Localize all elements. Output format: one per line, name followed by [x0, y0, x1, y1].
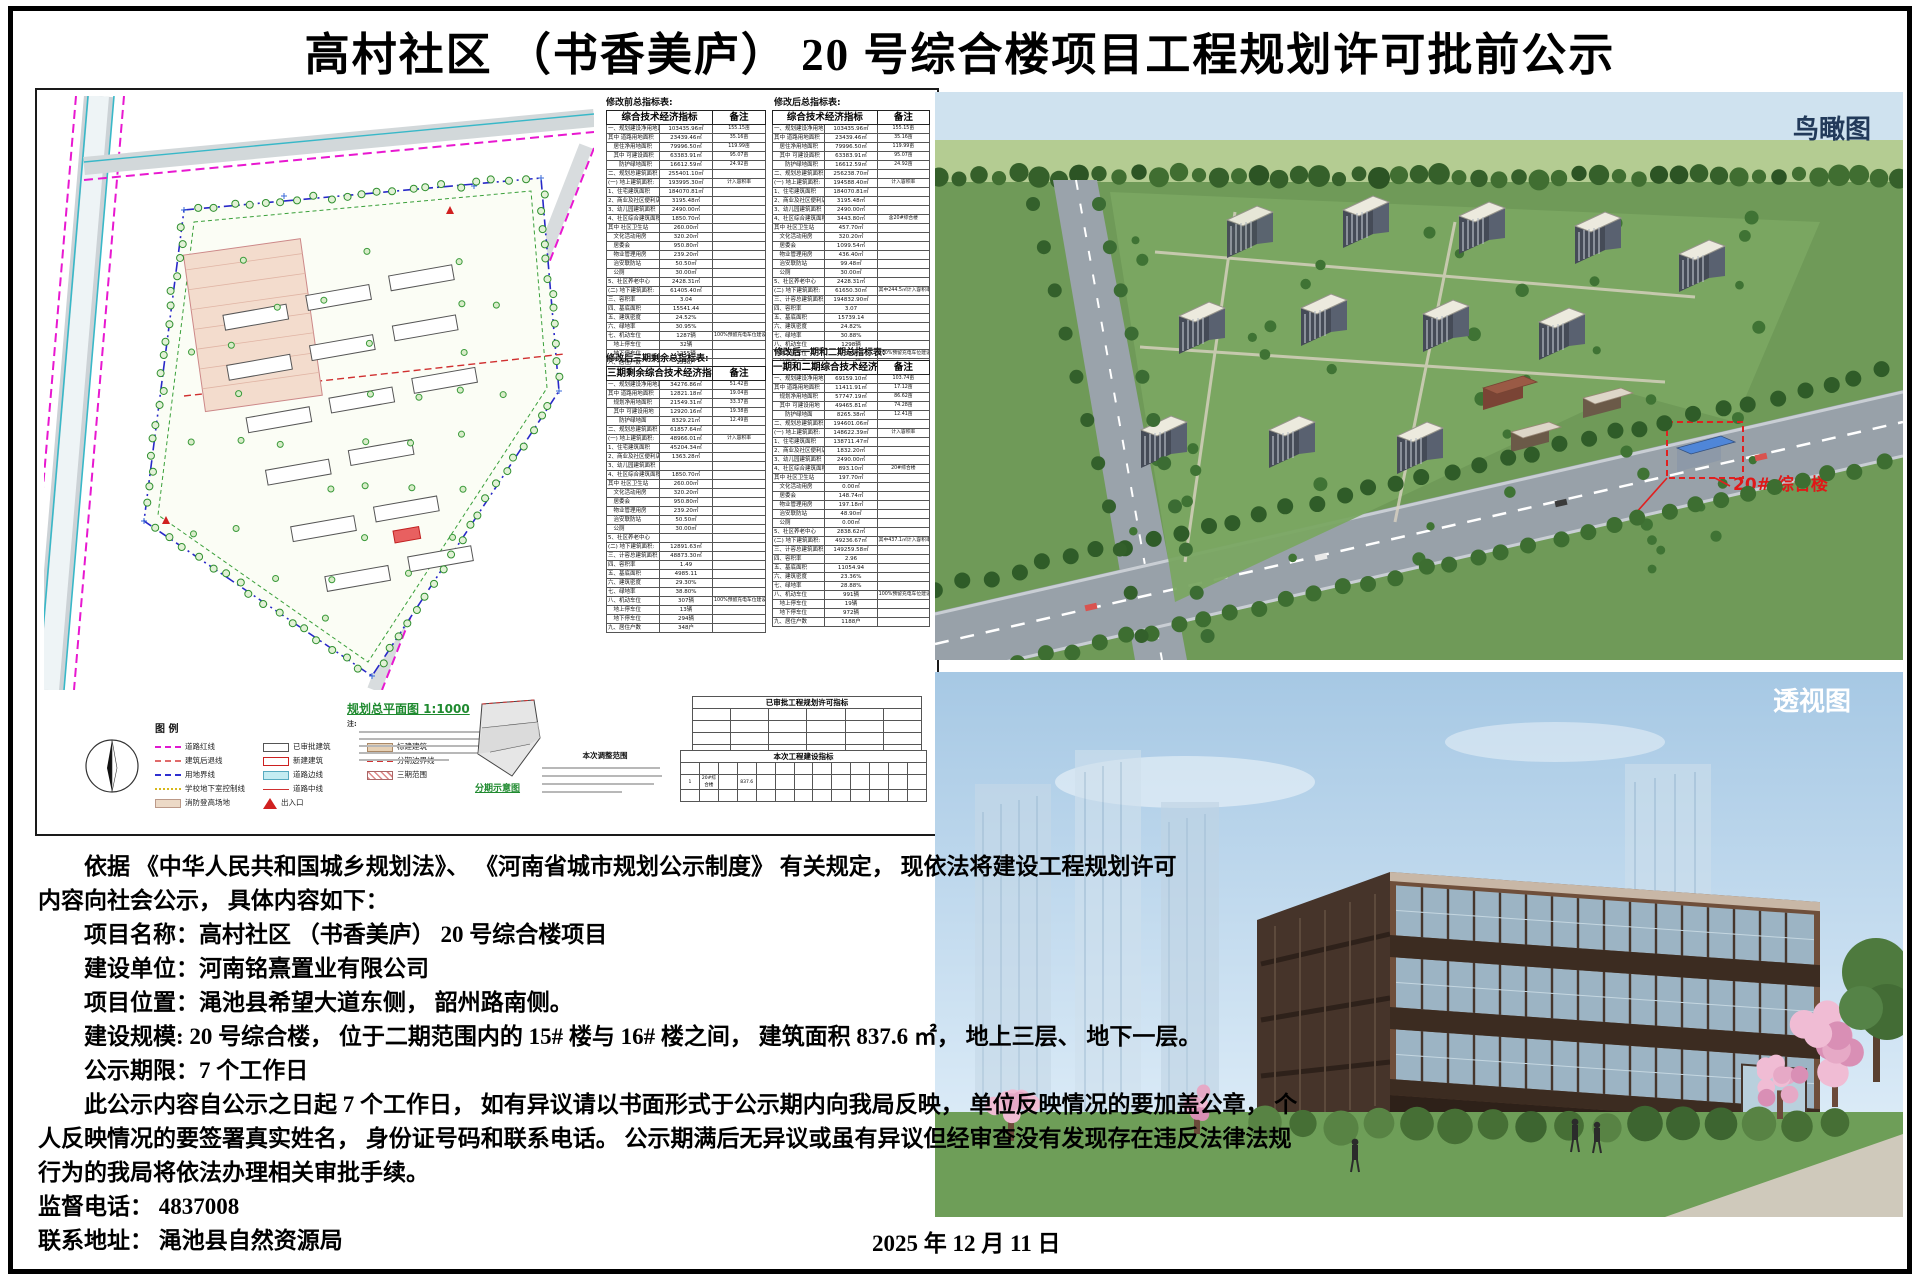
table-cell: 二、规划总建筑面积 — [607, 170, 660, 179]
table-cell: 13辆 — [660, 606, 713, 615]
table-cell: 11411.91㎡ — [825, 384, 877, 393]
table-cell — [845, 721, 883, 733]
legend-item: 建筑后退线 — [155, 754, 263, 768]
table-row: 三、计容总建筑面积194832.90㎡ — [773, 296, 930, 305]
table-cell: 公厕 — [607, 525, 660, 534]
table-cell: 8329.21㎡ — [660, 417, 713, 426]
page-title: 高村社区 （书香美庐） 20 号综合楼项目工程规划许可批前公示 — [0, 18, 1920, 83]
table-cell: (一) 地上建筑面积: — [607, 435, 660, 444]
adjust-scope-block: 本次调整范围 — [542, 750, 668, 799]
table-cell: 1832.20㎡ — [825, 447, 877, 456]
table-cell — [877, 420, 929, 429]
table-cell: 197.70㎡ — [825, 474, 877, 483]
table-cell: 规划净用地面积 — [773, 393, 825, 402]
table-row: 防护绿地面积16612.59㎡24.92亩 — [773, 161, 930, 170]
table-cell: 12.41亩 — [877, 411, 929, 420]
table-cell: 28.88% — [825, 582, 877, 591]
table-row: 4、社区综合建筑面积893.10㎡20#综合楼 — [773, 465, 930, 474]
table-cell — [756, 790, 775, 802]
table-cell: 1、住宅建筑面积 — [607, 444, 660, 453]
table-cell — [713, 561, 766, 570]
line-red-swatch — [263, 789, 289, 790]
table-header: 备注 — [877, 361, 929, 375]
table-row: 公厕30.00㎡ — [607, 525, 766, 534]
table-cell: 100%预留充电车位建设安装条件 — [713, 332, 766, 341]
table-row: 规划净用地面积21549.31㎡33.37亩 — [607, 399, 766, 408]
table-cell — [877, 492, 929, 501]
table-cell — [713, 498, 766, 507]
legend-title: 图 例 — [155, 724, 178, 735]
table-cell: 2、商业及社区便利店面积 — [607, 453, 660, 462]
table-cell: 149259.58㎡ — [825, 546, 877, 555]
notice-text-block: 依据 《中华人民共和国城乡规划法》、 《河南省城市规划公示制度》 有关规定， 现… — [38, 850, 938, 1258]
table-cell: 文化活动用房 — [773, 483, 825, 492]
table-header: 一期和二期综合技术经济指标 — [773, 361, 878, 375]
table-cell: 三、计容总建筑面积 — [607, 552, 660, 561]
notice-line: 建设规模: 20 号综合楼， 位于二期范围内的 15# 楼与 16# 楼之间， … — [38, 1020, 938, 1054]
table-row: 2、商业及社区便利店面积3195.48㎡ — [773, 197, 930, 206]
table-cell — [877, 170, 929, 179]
table-cell: 居委会 — [773, 492, 825, 501]
notice-line: 行为的我局将依法办理相关审批手续。 — [38, 1156, 938, 1190]
table-cell: 1363.28㎡ — [660, 453, 713, 462]
table-cell: 20#综合楼 — [699, 775, 718, 790]
table-cell: 其中 社区卫生站 — [773, 474, 825, 483]
table-row: 七、绿地率28.88% — [773, 582, 930, 591]
table-cell: 计入容积率 — [877, 179, 929, 188]
table-row: 其中 道路用地面积11411.91㎡17.12亩 — [773, 384, 930, 393]
table-cell: 治安联防站 — [773, 260, 825, 269]
table-cell: 103435.96㎡ — [660, 125, 713, 134]
table-row: 三、容积率3.04 — [607, 296, 766, 305]
current-project-table: 本次工程建设指标120#综合楼837.6 — [680, 750, 927, 802]
table-cell: 居委会 — [773, 242, 825, 251]
table-cell — [756, 775, 775, 790]
table-row: 4、社区综合建筑面积1850.70㎡ — [607, 215, 766, 224]
table-cell: 地上停车位 — [773, 600, 825, 609]
table-cell: 119.99亩 — [713, 143, 766, 152]
table-cell — [851, 790, 870, 802]
notice-line: 人反映情况的要签署真实姓名， 身份证号码和联系电话。 公示期满后无异议或虽有异议… — [38, 1122, 938, 1156]
table-cell: 0.00㎡ — [825, 519, 877, 528]
table-cell — [877, 332, 929, 341]
table-cell: 12891.63㎡ — [660, 543, 713, 552]
dash-magenta-swatch — [155, 746, 181, 748]
table-row: 文化活动用房320.20㎡ — [773, 233, 930, 242]
table-cell: 255401.10㎡ — [660, 170, 713, 179]
table-row: 其中 社区卫生站260.00㎡ — [607, 224, 766, 233]
table-cell: (一) 地上建筑面积: — [773, 179, 825, 188]
table-cell: 其中 道路用地面积 — [607, 134, 660, 143]
table-caption-phase3: 修改后三期剩余总指标表: — [606, 354, 709, 365]
table-cell: 六、绿地率 — [607, 323, 660, 332]
table-cell: 其中 可建设用地 — [773, 402, 825, 411]
table-row: 地上停车位32辆 — [607, 341, 766, 350]
table-header: 备注 — [713, 367, 766, 381]
table-cell — [713, 534, 766, 543]
table-cell: (二) 地下建筑面积: — [773, 537, 825, 546]
table-cell — [807, 709, 845, 721]
table-phase12: 一期和二期综合技术经济指标备注一、规划建设净用地面积:69159.10㎡103.… — [772, 360, 930, 627]
table-row: 地下停车位294辆 — [607, 615, 766, 624]
table-row: 五、基底面积15739.14 — [773, 314, 930, 323]
table-cell: 防护绿地面积 — [773, 161, 825, 170]
table-cell — [832, 790, 851, 802]
table-cell: 居委会 — [607, 242, 660, 251]
table-cell: 30.95% — [660, 323, 713, 332]
table-header: 综合技术经济指标 — [607, 111, 713, 125]
table-cell: 320.20㎡ — [825, 233, 877, 242]
dash-yellow-swatch — [155, 788, 181, 790]
table-cell: 地下停车位 — [607, 615, 660, 624]
table-row: 3、幼儿园建筑面积2490.00㎡ — [607, 206, 766, 215]
table-cell: 1.49 — [660, 561, 713, 570]
table-cell — [660, 462, 713, 471]
notice-line: 内容向社会公示， 具体内容如下： — [38, 884, 938, 918]
table-cell: 35.16亩 — [877, 134, 929, 143]
table-cell — [877, 296, 929, 305]
table-row: 五、建筑密度24.52% — [607, 314, 766, 323]
aerial-view-image: 20# 综合楼 鸟瞰图 — [935, 92, 1903, 660]
table-cell — [794, 775, 813, 790]
table-cell: 2428.31㎡ — [660, 278, 713, 287]
table-row: 1、住宅建筑面积45204.34㎡ — [607, 444, 766, 453]
table-cell: 103435.96㎡ — [825, 125, 877, 134]
table-row: 防护绿地面8329.21㎡12.49亩 — [607, 417, 766, 426]
table-row: 防护绿地面积16612.59㎡24.92亩 — [607, 161, 766, 170]
table-cell: 计入容积率 — [877, 429, 929, 438]
table-cell: (二) 地下建筑面积: — [607, 543, 660, 552]
table-cell: 991辆 — [825, 591, 877, 600]
table-cell — [877, 242, 929, 251]
table-cell: 30.00㎡ — [825, 269, 877, 278]
table-cell: 49465.81㎡ — [825, 402, 877, 411]
table-cell — [713, 296, 766, 305]
table-cell — [713, 215, 766, 224]
table-cell: 含20#综合楼 — [877, 215, 929, 224]
table-cell — [883, 709, 921, 721]
table-row — [681, 790, 927, 802]
table-row: 六、建筑密度29.30% — [607, 579, 766, 588]
legend-item: 道路中线 — [263, 782, 371, 796]
table-cell — [713, 615, 766, 624]
table-cell: 15541.44 — [660, 305, 713, 314]
table-row: 居委会148.74㎡ — [773, 492, 930, 501]
table-row: 文化活动用房0.00㎡ — [773, 483, 930, 492]
table-cell: 治安联防站 — [607, 260, 660, 269]
table-cell — [877, 609, 929, 618]
table-cell: 计入容积率 — [713, 435, 766, 444]
table-row: 九、居住户数348户 — [607, 624, 766, 633]
table-cell: 3195.48㎡ — [825, 197, 877, 206]
table-cell — [908, 775, 927, 790]
north-compass — [82, 728, 142, 800]
table-cell — [713, 260, 766, 269]
table-row: (二) 地下建筑面积:49236.67㎡其中437.1㎡计入容积率 — [773, 537, 930, 546]
table-cell: 3、幼儿园建筑面积 — [773, 206, 825, 215]
table-row: 文化活动用房320.20㎡ — [607, 489, 766, 498]
table-cell: 八、机动车位 — [607, 597, 660, 606]
table-cell — [877, 546, 929, 555]
table-cell: 239.20㎡ — [660, 251, 713, 260]
table-cell: 33.37亩 — [713, 399, 766, 408]
legend-item: 学校地下室控制线 — [155, 782, 263, 796]
table-cell: 29.30% — [660, 579, 713, 588]
table-cell: 19.04亩 — [713, 390, 766, 399]
table-row — [681, 763, 927, 775]
table-cell — [794, 790, 813, 802]
table-cell — [713, 588, 766, 597]
legend-label: 建筑后退线 — [185, 756, 223, 766]
table-cell: 1188户 — [825, 618, 877, 627]
table-row: 3、幼儿园建筑面积 — [607, 462, 766, 471]
table-cell — [877, 305, 929, 314]
table-row — [693, 721, 922, 733]
table-before: 综合技术经济指标备注一、规划建设净用地面积:103435.96㎡155.15亩其… — [606, 110, 766, 368]
table-cell: 3、幼儿园建筑面积 — [607, 206, 660, 215]
table-cell: 19.38亩 — [713, 408, 766, 417]
table-cell — [713, 462, 766, 471]
table-row: 其中 可建设用地49465.81㎡74.28亩 — [773, 402, 930, 411]
table-cell: 七、机动车位 — [607, 332, 660, 341]
table-cell: 17.12亩 — [877, 384, 929, 393]
table-cell — [737, 763, 756, 775]
table-cell: 972辆 — [825, 609, 877, 618]
table-row: 一、规划建设净用地面积103435.96㎡155.15亩 — [773, 125, 930, 134]
table-cell: 二、规划总建筑面积 — [773, 170, 825, 179]
table-cell — [877, 269, 929, 278]
table-cell: 1850.70㎡ — [660, 215, 713, 224]
table-cell: 1099.54㎡ — [825, 242, 877, 251]
table-cell — [713, 453, 766, 462]
table-cell: 19辆 — [825, 600, 877, 609]
table-cell: 837.6 — [737, 775, 756, 790]
table-row: 二、规划总建筑面积61857.64㎡ — [607, 426, 766, 435]
table-cell — [813, 790, 832, 802]
table-row: 八、机动车位307辆100%预留充电车位建设安装条件 — [607, 597, 766, 606]
table-row: (二) 地下建筑面积:12891.63㎡ — [607, 543, 766, 552]
table-cell: 950.80㎡ — [660, 242, 713, 251]
table-row: 一、规划建设净用地面积:69159.10㎡103.74亩 — [773, 375, 930, 384]
table-cell: 其中244.5㎡计入容积率 — [877, 287, 929, 296]
table-cell: 四、容积率 — [773, 305, 825, 314]
table-cell — [877, 519, 929, 528]
table-cell — [877, 233, 929, 242]
table-cell — [713, 489, 766, 498]
table-cell: 63383.91㎡ — [825, 152, 877, 161]
table-row: 居委会950.80㎡ — [607, 242, 766, 251]
table-row: 规划净用地面积57747.19㎡86.62亩 — [773, 393, 930, 402]
site-plan-drawing — [44, 96, 594, 690]
table-cell: 148622.39㎡ — [825, 429, 877, 438]
table-cell: 1 — [681, 775, 700, 790]
table-cell — [877, 188, 929, 197]
table-cell: 其中 道路用地面积 — [773, 384, 825, 393]
table-cell: 348户 — [660, 624, 713, 633]
table-cell — [769, 733, 807, 745]
table-after: 综合技术经济指标备注一、规划建设净用地面积103435.96㎡155.15亩其中… — [772, 110, 930, 377]
table-cell: 45204.34㎡ — [660, 444, 713, 453]
table-cell: 100%预留充电车位建设安装条件 — [713, 597, 766, 606]
table-cell — [713, 570, 766, 579]
table-cell — [877, 474, 929, 483]
table-row: 地下停车位972辆 — [773, 609, 930, 618]
table-cell: 其中 道路用地面积 — [773, 134, 825, 143]
table-cell: 地上停车位 — [607, 341, 660, 350]
legend-item: 道路红线 — [155, 740, 263, 754]
table-row: 一、规划建设净用地面积:103435.96㎡155.15亩 — [607, 125, 766, 134]
legend-item: 道路边线 — [263, 768, 371, 782]
table-row: 1、住宅建筑面积184070.81㎡ — [773, 188, 930, 197]
table-cell: 物业管理用房 — [607, 507, 660, 516]
table-cell: 二、规划总建筑面积 — [607, 426, 660, 435]
table-row: 5、社区养老中心2428.31㎡ — [773, 278, 930, 287]
table-header: 综合技术经济指标 — [773, 111, 878, 125]
table-row: 九、居住户数1188户 — [773, 618, 930, 627]
table-cell: 地下停车位 — [773, 609, 825, 618]
table-cell — [775, 790, 794, 802]
box-red-swatch — [263, 757, 289, 766]
table-cell: 三、计容总建筑面积 — [773, 296, 825, 305]
table-row: 其中 道路用地面积12821.18㎡19.04亩 — [607, 390, 766, 399]
table-cell: 一、规划建设净用地面积: — [773, 375, 825, 384]
table-cell — [877, 573, 929, 582]
tri-red-swatch — [263, 798, 277, 809]
table-cell — [813, 775, 832, 790]
table-cell: 四、容积率 — [773, 555, 825, 564]
table-row: 2、商业及社区便利店面积1832.20㎡ — [773, 447, 930, 456]
notice-line: 依据 《中华人民共和国城乡规划法》、 《河南省城市规划公示制度》 有关规定， 现… — [38, 850, 938, 884]
table-cell: 48873.30㎡ — [660, 552, 713, 561]
table-row: 四、容积率3.07 — [773, 305, 930, 314]
table-cell — [713, 197, 766, 206]
table-cell: 规划净用地面积 — [607, 399, 660, 408]
table-row: 物业管理用房197.18㎡ — [773, 501, 930, 510]
table-cell: 1、住宅建筑面积 — [773, 438, 825, 447]
table-cell: 155.15亩 — [713, 125, 766, 134]
table-cell — [713, 206, 766, 215]
table-cell — [877, 555, 929, 564]
legend-item: 出入口 — [263, 796, 371, 810]
table-row: 公厕30.00㎡ — [607, 269, 766, 278]
table-cell: 103.74亩 — [877, 375, 929, 384]
table-cell — [713, 287, 766, 296]
table-cell: 物业管理用房 — [773, 251, 825, 260]
table-cell: 23.36% — [825, 573, 877, 582]
table-row — [693, 733, 922, 745]
table-row: 文化活动用房320.20㎡ — [607, 233, 766, 242]
table-cell: 居住净用地面积 — [607, 143, 660, 152]
table-cell: 11054.94 — [825, 564, 877, 573]
table-cell: 50.50㎡ — [660, 260, 713, 269]
indicator-table: 三期剩余综合技术经济指标备注一、规划建设净用地面积:34276.86㎡51.42… — [606, 366, 766, 633]
legend-column-1: 道路红线建筑后退线用地界线学校地下室控制线消防登高场地 — [155, 740, 263, 810]
table-cell: 3、幼儿园建筑面积 — [773, 456, 825, 465]
table-cell — [713, 242, 766, 251]
table-cell — [769, 709, 807, 721]
table-cell: 4、社区综合建筑面积 — [773, 465, 825, 474]
table-row: 居住净用地面积79996.50㎡119.99亩 — [607, 143, 766, 152]
table-title: 已审批工程规划许可指标 — [693, 697, 922, 709]
table-cell: 99.48㎡ — [825, 260, 877, 269]
table-cell: 21549.31㎡ — [660, 399, 713, 408]
table-row: 1、住宅建筑面积184070.81㎡ — [607, 188, 766, 197]
table-row: 5、社区养老中心2838.62㎡ — [773, 528, 930, 537]
table-cell — [870, 763, 889, 775]
table-cell: 四、基底面积 — [607, 305, 660, 314]
table-cell: 五、基底面积 — [607, 570, 660, 579]
table-cell: 4、社区综合建筑面积 — [773, 215, 825, 224]
site-plan-panel: 修改前总指标表: 综合技术经济指标备注一、规划建设净用地面积:103435.96… — [35, 88, 939, 836]
perspective-view-label: 透视图 — [1773, 687, 1851, 717]
table-cell — [877, 510, 929, 519]
table-cell: 九、居住户数 — [773, 618, 825, 627]
dash-blue-swatch — [155, 774, 181, 776]
table-cell: 256238.70㎡ — [825, 170, 877, 179]
table-cell: 五、建筑密度 — [607, 314, 660, 323]
table-cell: 5、社区养老中心 — [773, 528, 825, 537]
table-cell — [699, 790, 718, 802]
table-row: 六、绿地率30.95% — [607, 323, 766, 332]
table-cell: 79996.50㎡ — [660, 143, 713, 152]
table-cell: 3、幼儿园建筑面积 — [607, 462, 660, 471]
legend-label: 新建建筑 — [293, 756, 323, 766]
table-cell — [877, 314, 929, 323]
legend-item: 新建建筑 — [263, 754, 371, 768]
table-cell — [832, 775, 851, 790]
table-cell — [713, 480, 766, 489]
table-cell: 86.62亩 — [877, 393, 929, 402]
table-cell: 20#综合楼 — [877, 465, 929, 474]
table-cell: 79996.50㎡ — [825, 143, 877, 152]
table-row: 一、规划建设净用地面积:34276.86㎡51.42亩 — [607, 381, 766, 390]
notice-line: 此公示内容自公示之日起 7 个工作日， 如有异议请以书面形式于公示期内向我局反映… — [38, 1088, 938, 1122]
table-cell — [877, 260, 929, 269]
table-cell: 48966.01㎡ — [660, 435, 713, 444]
table-cell — [699, 763, 718, 775]
table-cell: 公厕 — [607, 269, 660, 278]
phase-diagram-label: 分期示意图 — [475, 784, 520, 795]
table-cell — [713, 278, 766, 287]
table-cell: 38.80% — [660, 588, 713, 597]
table-row: 居委会950.80㎡ — [607, 498, 766, 507]
table-cell — [908, 763, 927, 775]
notice-line: 项目位置：渑池县希望大道东侧， 韶州路南侧。 — [38, 986, 938, 1020]
table-cell: 260.00㎡ — [660, 480, 713, 489]
indicator-table: 综合技术经济指标备注一、规划建设净用地面积103435.96㎡155.15亩其中… — [772, 110, 930, 377]
table-cell: 居住净用地面积 — [773, 143, 825, 152]
phase-diagram — [472, 698, 544, 780]
table-cell — [693, 733, 731, 745]
table-cell: 30.88% — [825, 332, 877, 341]
table-cell: 2838.62㎡ — [825, 528, 877, 537]
table-row: 公厕0.00㎡ — [773, 519, 930, 528]
table-cell — [877, 447, 929, 456]
table-cell: 1、住宅建筑面积 — [773, 188, 825, 197]
table-cell — [832, 763, 851, 775]
table-cell — [713, 471, 766, 480]
table-row: 四、容积率2.96 — [773, 555, 930, 564]
table-cell: 三、容积率 — [607, 296, 660, 305]
table-cell: 436.40㎡ — [825, 251, 877, 260]
table-cell: 0.00㎡ — [825, 483, 877, 492]
table-cell — [718, 790, 737, 802]
table-cell — [807, 733, 845, 745]
table-cell — [877, 618, 929, 627]
legend-label: 道路边线 — [293, 770, 323, 780]
table-cell: 九、居住户数 — [607, 624, 660, 633]
table-cell — [713, 624, 766, 633]
